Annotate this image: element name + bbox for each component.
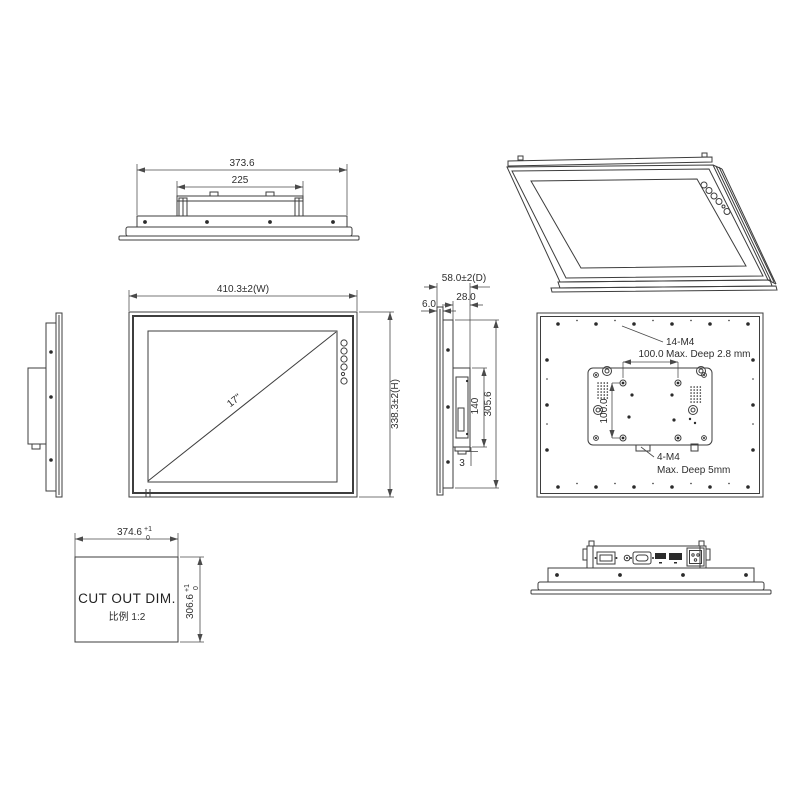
dim-side-module: 140 [470, 397, 481, 414]
dim-vesa-width: 100.0 [638, 349, 663, 360]
side-section-view: 58.0±2(D) 28.0 6.0 3 140 [421, 273, 499, 495]
connector-hdmi [655, 553, 666, 564]
connector-dp [669, 553, 682, 564]
connector-vga [630, 552, 654, 564]
top-view: 373.6 225 [119, 158, 359, 240]
rear-view: 14-M4 Max. Deep 2.8 mm 100.0 100.0 4-M4 … [537, 313, 763, 497]
perspective-view [507, 153, 777, 292]
osd-buttons [341, 340, 347, 384]
dim-cutout-width-tol-lower: 0 [146, 535, 150, 542]
engineering-drawing-sheet: 373.6 225 [0, 0, 800, 800]
vesa-holes [620, 380, 681, 441]
connector-power-terminal [687, 548, 704, 566]
cutout-title: CUT OUT DIM. [78, 591, 176, 606]
dim-top-bracket: 225 [232, 175, 249, 186]
left-side-view [28, 313, 62, 497]
connector-serial [595, 552, 618, 564]
dim-front-height: 338.3±2(H) [390, 379, 401, 429]
dim-vesa-height: 100.0 [599, 398, 610, 423]
dim-side-gap: 3 [459, 458, 465, 469]
dim-cutout-height-tol-upper: +1 [184, 584, 191, 592]
dim-side-bezel: 6.0 [422, 299, 436, 310]
vent-grid-right [691, 387, 703, 402]
knockout-rings [594, 367, 706, 425]
cutout-view: 374.6 +1 0 306.6 +1 0 CUT OUT DIM. 比例 1:… [75, 526, 204, 642]
dim-top-overall: 373.6 [229, 158, 254, 169]
io-panel [587, 546, 706, 568]
dim-cutout-width-tol-upper: +1 [144, 526, 152, 533]
rear-vesa-label: 4-M4 [657, 452, 680, 463]
connector-audio-jack [624, 555, 630, 561]
dim-cutout-height: 306.6 [185, 594, 196, 619]
rear-perimeter-note: Max. Deep 2.8 mm [666, 349, 750, 360]
dim-cutout-width: 374.6 [117, 527, 142, 538]
dim-cutout-height-tol-lower: 0 [193, 586, 200, 590]
rear-vesa-note: Max. Deep 5mm [657, 465, 730, 476]
dim-side-rear: 28.0 [456, 292, 476, 303]
screen-area [531, 179, 746, 268]
cutout-scale-label: 比例 1:2 [109, 610, 146, 623]
rear-perimeter-label: 14-M4 [666, 337, 695, 348]
front-view: 410.3±2(W) 17" 338.3±2(H) [129, 284, 401, 497]
vent-grid-left [598, 383, 610, 398]
bottom-view [531, 541, 771, 594]
dim-front-width: 410.3±2(W) [217, 284, 269, 295]
drawing-svg: 373.6 225 [0, 0, 800, 800]
dim-side-body: 305.6 [483, 391, 494, 416]
dim-side-depth: 58.0±2(D) [442, 273, 486, 284]
